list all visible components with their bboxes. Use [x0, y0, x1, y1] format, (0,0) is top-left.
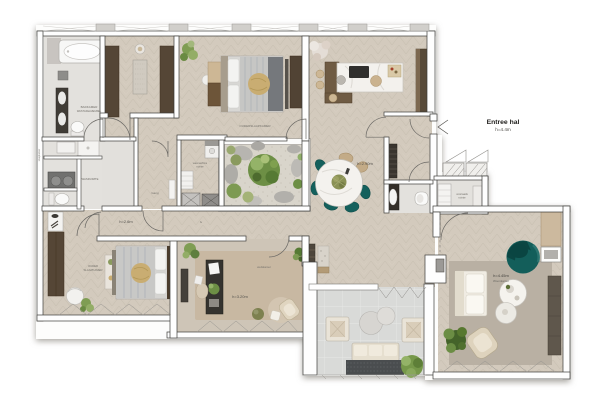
svg-text:h=2.90m: h=2.90m — [357, 161, 373, 166]
svg-text:BADKAMER: BADKAMER — [81, 105, 99, 109]
svg-text:wasmachine: wasmachine — [193, 161, 208, 165]
svg-text:WASTAFELMEUBEL: WASTAFELMEUBEL — [77, 109, 102, 113]
svg-text:Woonkamer: Woonkamer — [493, 279, 509, 283]
svg-text:Entree hal: Entree hal — [487, 119, 520, 126]
svg-text:Gang: Gang — [151, 191, 159, 195]
svg-text:WASRUIMTE: WASRUIMTE — [82, 177, 99, 181]
svg-text:h=4.45m: h=4.45m — [493, 273, 509, 278]
svg-text:slaapkamer: slaapkamer — [38, 149, 41, 162]
svg-text:ruimte: ruimte — [458, 196, 466, 200]
svg-text:h=2.6m: h=2.6m — [119, 219, 133, 224]
svg-text:voorraads: voorraads — [456, 192, 468, 196]
svg-text:h=4.4m: h=4.4m — [495, 127, 511, 132]
svg-text:h=3.20m: h=3.20m — [232, 294, 248, 299]
svg-text:SLAAPKAMER: SLAAPKAMER — [84, 268, 103, 272]
svg-text:werkkamer: werkkamer — [257, 265, 271, 269]
svg-text:ruimte: ruimte — [196, 165, 204, 169]
svg-text:OUDERSLAAPKAMER: OUDERSLAAPKAMER — [239, 124, 271, 128]
